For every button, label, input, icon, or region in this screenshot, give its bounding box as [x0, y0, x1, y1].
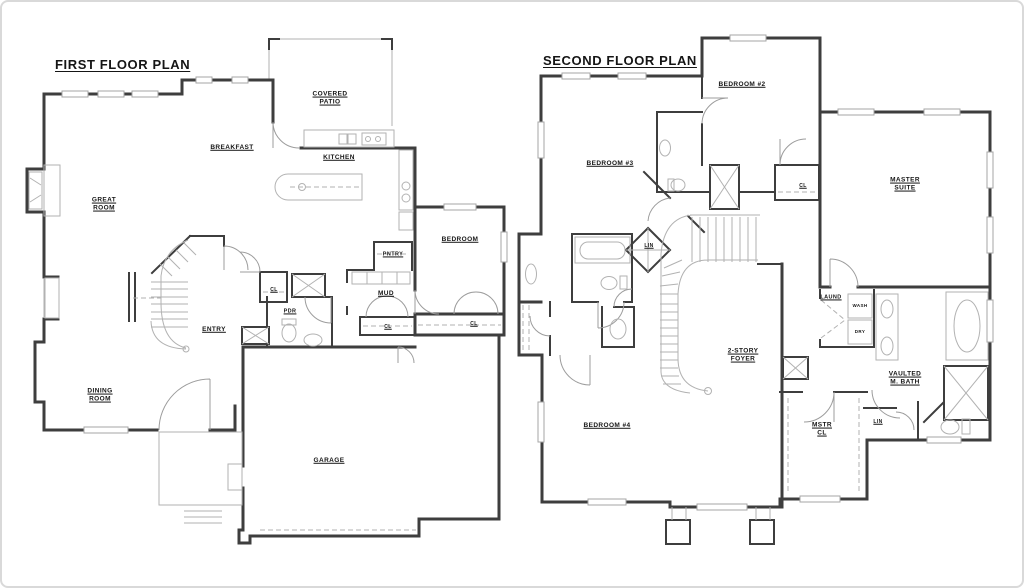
room-label: MASTER SUITE	[890, 177, 920, 194]
room-label: VAULTED M. BATH	[889, 371, 922, 388]
burner-icon	[376, 137, 381, 142]
sink-bowl-right	[348, 134, 356, 144]
window	[196, 77, 212, 83]
room-label: LAUND	[820, 294, 841, 301]
room-label: PDR	[284, 308, 297, 315]
fridge	[399, 212, 413, 230]
door-arcs-2f	[530, 98, 914, 430]
hearth	[44, 165, 60, 216]
mud-bench-dividers	[367, 272, 397, 284]
window	[538, 122, 544, 158]
room-label: CL	[799, 183, 806, 190]
room-label: WASH	[852, 303, 867, 309]
hall-toilet-tank	[620, 276, 627, 289]
sink-bowl-left	[339, 134, 347, 144]
second-floor-title: SECOND FLOOR PLAN	[543, 53, 697, 68]
master-tub	[946, 292, 988, 360]
window	[84, 427, 128, 433]
front-porch	[159, 432, 242, 505]
room-label: BEDROOM #4	[584, 422, 631, 430]
covered-patio-outline	[269, 39, 392, 126]
window	[730, 35, 766, 41]
room-label: PNTRY	[383, 251, 403, 258]
stair2-treads	[660, 215, 760, 393]
window	[98, 91, 124, 97]
room-label: ENTRY	[202, 326, 226, 334]
bed2-bath-toilet-icon	[671, 179, 685, 191]
room-label: BREAKFAST	[210, 144, 253, 152]
first-floor-title: FIRST FLOOR PLAN	[55, 57, 190, 72]
closet-rods-2f-dashed	[523, 192, 859, 492]
porch-column	[666, 520, 690, 544]
room-label: 2-STORY FOYER	[728, 348, 759, 365]
cooktop-icon	[402, 182, 410, 190]
room-label: GREAT ROOM	[92, 197, 116, 214]
window	[838, 109, 874, 115]
room-label: CL	[270, 287, 277, 294]
patio-corner-ticks	[269, 39, 392, 49]
powder-sink-icon	[304, 334, 322, 346]
master-toilet-icon	[941, 420, 959, 434]
room-label: MUD	[378, 290, 394, 298]
powder-toilet-icon	[282, 324, 296, 342]
window	[800, 496, 840, 502]
stair-treads	[151, 240, 196, 349]
room-b-fixture-icon	[610, 319, 626, 339]
room-label: COVERED PATIO	[313, 91, 348, 108]
window	[697, 504, 747, 510]
second-floor-plan	[519, 35, 993, 544]
window	[62, 91, 88, 97]
window	[987, 217, 993, 253]
stair-walls	[129, 236, 224, 321]
window	[444, 204, 476, 210]
bed2-bath-sink-icon	[660, 140, 671, 156]
room-label: CL	[384, 324, 391, 331]
window	[987, 152, 993, 188]
porch-column	[750, 520, 774, 544]
fireplace-detail	[30, 178, 41, 202]
hall-tub-inner	[580, 242, 625, 259]
hall-toilet-icon	[601, 277, 617, 290]
vanity-sink-icon	[881, 300, 893, 318]
fireplace	[29, 172, 42, 209]
floor-plan-sheet: FIRST FLOOR PLAN SECOND FLOOR PLAN GREAT…	[0, 0, 1024, 588]
garage-side-step	[228, 464, 242, 490]
bump-sink-icon	[526, 264, 537, 284]
window	[538, 402, 544, 442]
room-label: CL	[470, 321, 477, 328]
room-label: GARAGE	[314, 457, 345, 465]
door-arcs	[159, 122, 498, 430]
window	[232, 77, 248, 83]
window	[927, 437, 961, 443]
window	[562, 73, 590, 79]
room-label: DINING ROOM	[87, 388, 112, 405]
window	[987, 300, 993, 342]
window	[618, 73, 646, 79]
window	[588, 499, 626, 505]
room-label: BEDROOM #2	[719, 81, 766, 89]
window	[132, 91, 158, 97]
first-floor-plan	[27, 39, 507, 543]
master-tub-inner	[954, 300, 980, 352]
room-label: KITCHEN	[323, 154, 355, 162]
master-toilet-tank	[962, 419, 970, 434]
porch-steps	[184, 511, 222, 523]
laundry-bifold-dashed	[821, 300, 845, 338]
wall-niche	[45, 278, 59, 318]
second-floor-walls	[519, 38, 990, 507]
burner-icon	[366, 137, 371, 142]
window	[501, 232, 507, 262]
kitchen-tall-cabinet	[399, 150, 413, 210]
cooktop-icon	[402, 194, 410, 202]
floor-plan-linework	[2, 2, 1024, 588]
window	[924, 109, 960, 115]
master-vanity	[876, 294, 898, 360]
room-label: BEDROOM #3	[587, 160, 634, 168]
room-label: MSTR CL	[812, 422, 832, 439]
room-label: DRY	[855, 329, 866, 335]
room-label: BEDROOM	[442, 236, 479, 244]
vanity-sink-icon	[881, 337, 893, 355]
first-floor-walls	[27, 80, 504, 543]
mud-bench	[352, 272, 410, 284]
room-label: LIN	[873, 419, 882, 426]
room-label: LIN	[644, 243, 653, 250]
